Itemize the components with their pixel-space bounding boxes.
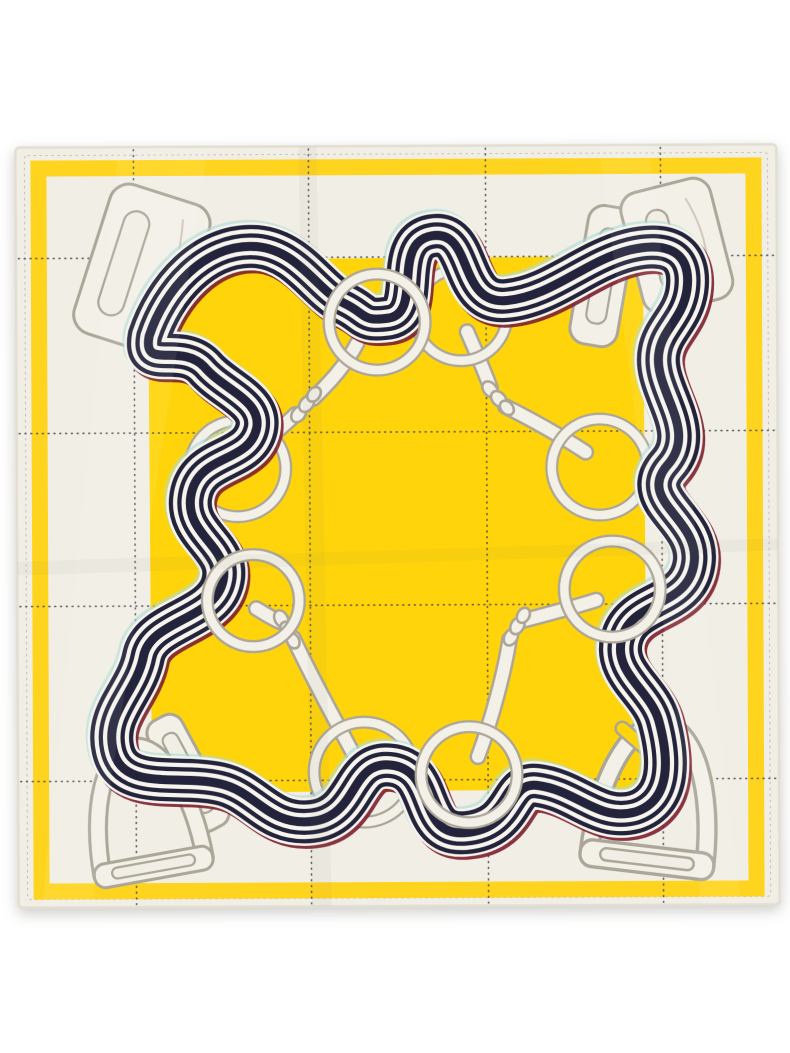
scarf-image — [0, 0, 790, 1053]
scarf — [15, 144, 779, 907]
product-photo — [0, 0, 790, 1053]
